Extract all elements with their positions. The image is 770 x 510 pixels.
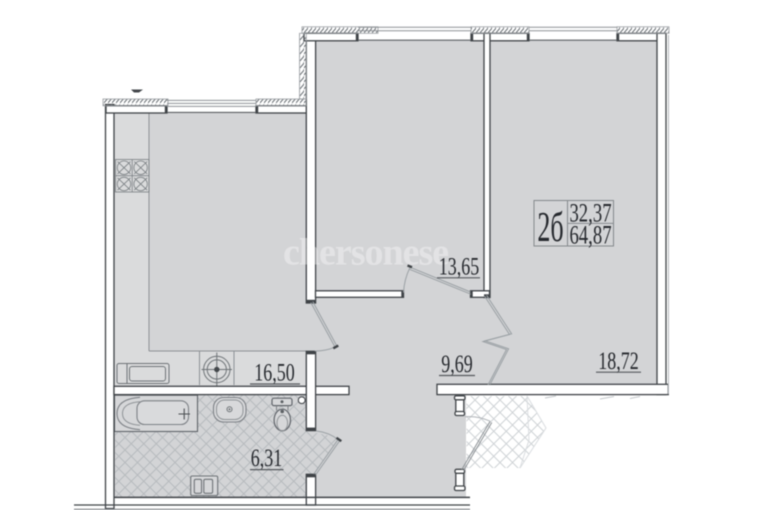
svg-text:chersonese: chersonese [283,232,448,274]
svg-text:2б: 2б [537,204,563,251]
svg-text:13,65: 13,65 [439,253,480,281]
svg-text:6,31: 6,31 [251,444,282,472]
svg-text:16,50: 16,50 [254,359,295,387]
svg-text:18,72: 18,72 [598,347,638,375]
svg-text:64,87: 64,87 [569,221,611,250]
svg-text:9,69: 9,69 [441,350,472,378]
